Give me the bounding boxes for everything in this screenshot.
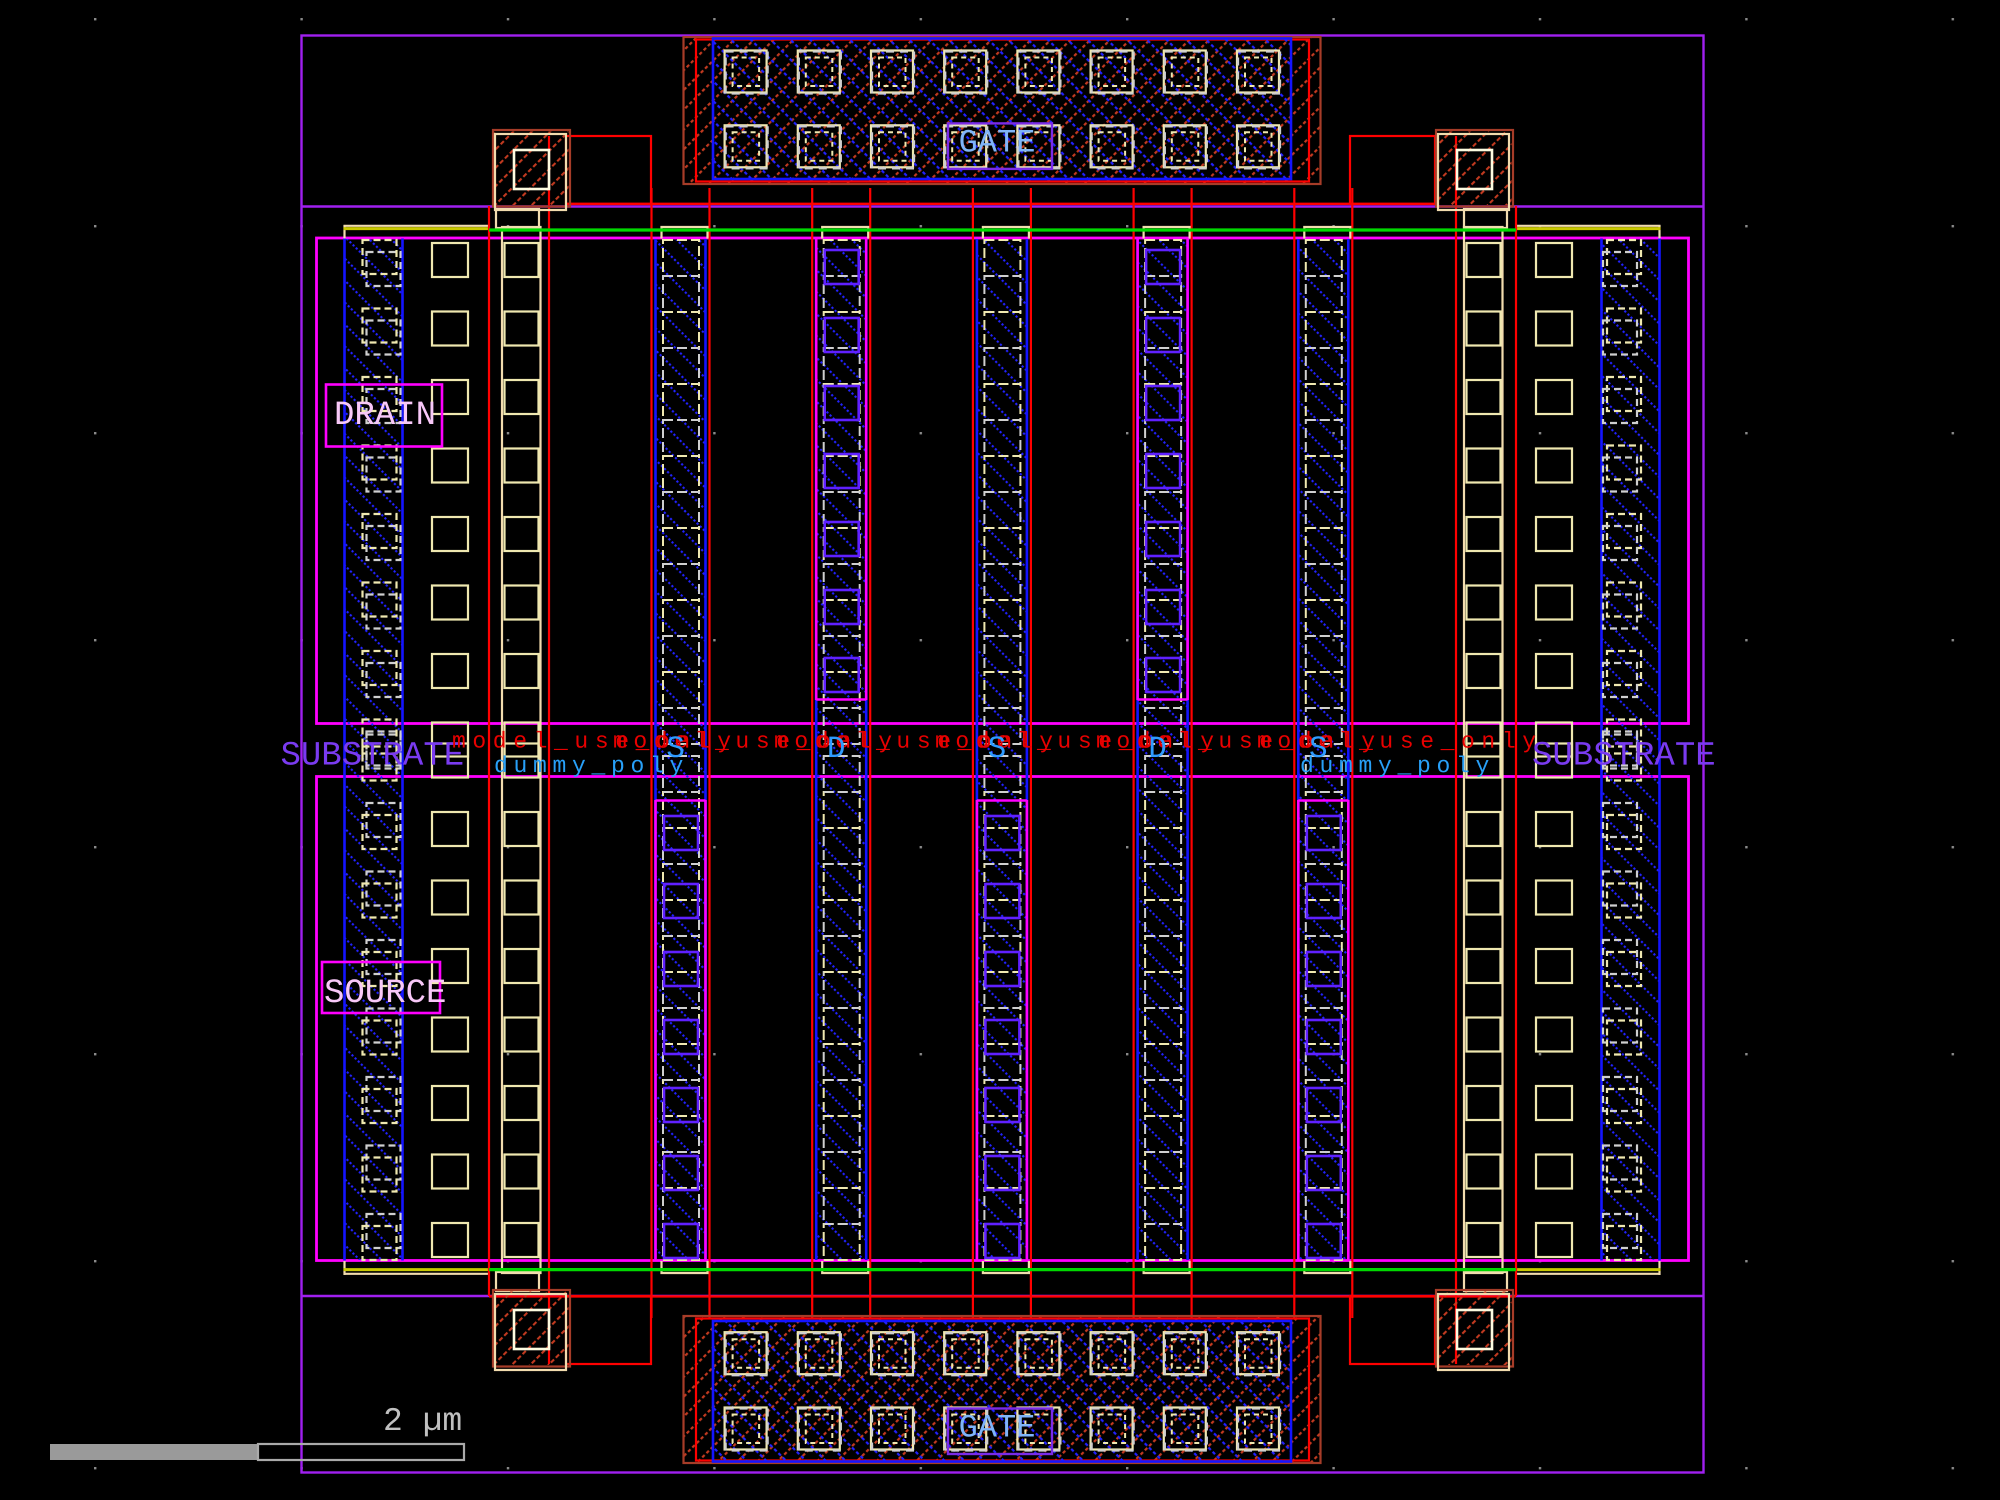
svg-text:model_use_only: model_use_only [1257,729,1543,755]
svg-text:SOURCE: SOURCE [324,975,446,1013]
svg-text:GATE: GATE [959,1410,1036,1447]
svg-text:DRAIN: DRAIN [334,397,436,435]
svg-text:SUBSTRATE: SUBSTRATE [280,738,464,776]
svg-text:GATE: GATE [959,125,1036,162]
svg-text:S: S [1309,732,1328,767]
svg-text:D: D [1148,732,1167,767]
svg-text:S: S [988,732,1007,767]
svg-text:dummy_poly: dummy_poly [494,753,689,779]
svg-text:S: S [666,732,685,767]
svg-text:2 µm: 2 µm [383,1403,462,1440]
svg-text:SUBSTRATE: SUBSTRATE [1532,738,1716,776]
svg-text:dummy_poly: dummy_poly [1300,753,1495,779]
svg-text:D: D [827,732,846,767]
